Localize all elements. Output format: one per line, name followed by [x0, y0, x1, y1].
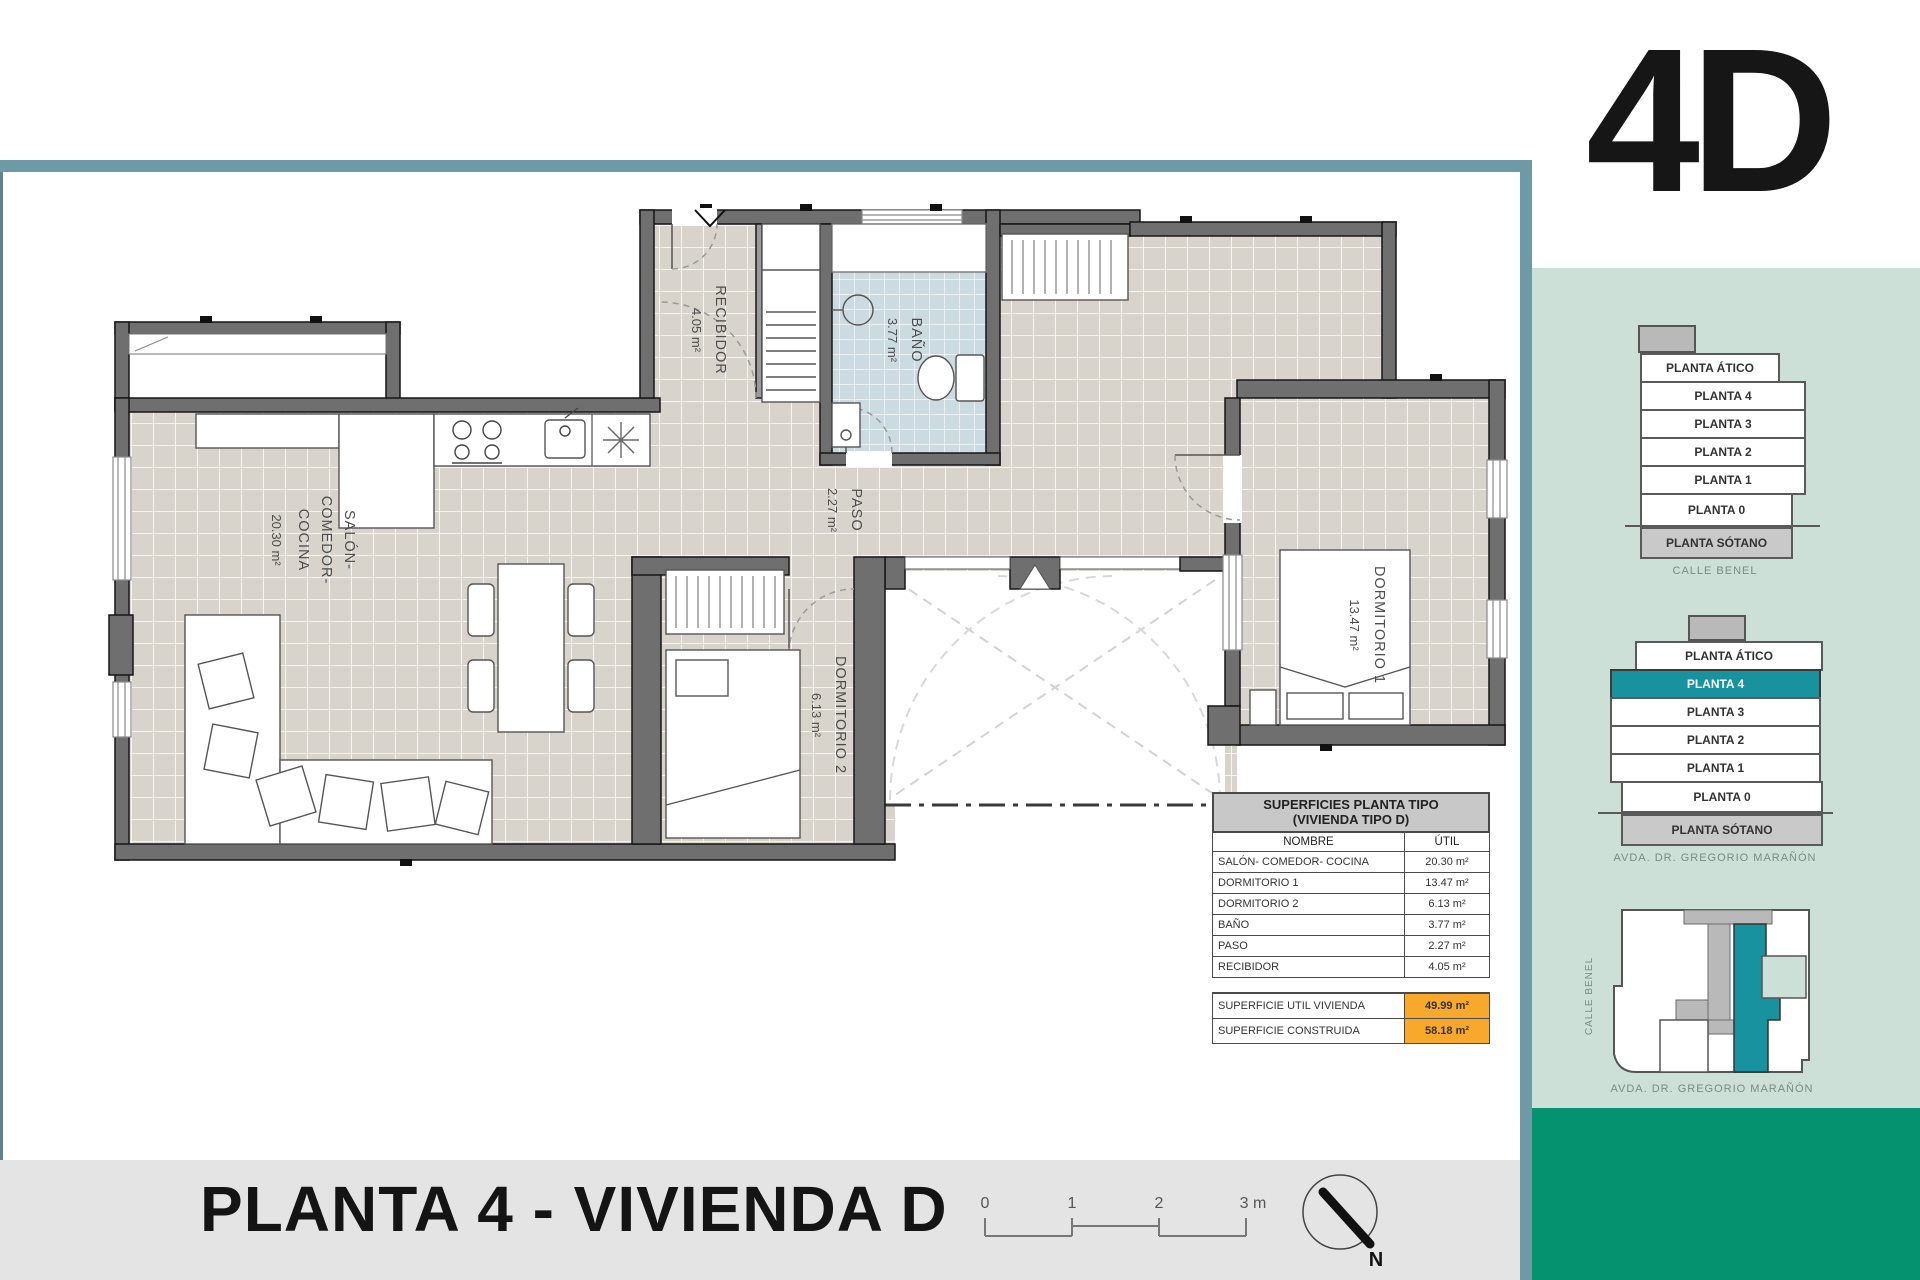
scale-tick-0: 0	[981, 1195, 990, 1212]
table-row: BAÑO3.77 m²	[1212, 915, 1490, 936]
svg-text:BAÑO: BAÑO	[908, 317, 925, 362]
stack-floor-1[interactable]: PLANTA 1	[1640, 465, 1806, 495]
floor-stack-bottom: PLANTA ÁTICO PLANTA 4 PLANTA 3 PLANTA 2 …	[1610, 615, 1850, 885]
svg-text:4.05 m²: 4.05 m²	[689, 308, 704, 353]
hall-closet	[762, 224, 820, 402]
table-totals: SUPERFICIE UTIL VIVIENDA 49.99 m² SUPERF…	[1212, 992, 1490, 1044]
table-row: RECIBIDOR4.05 m²	[1212, 957, 1490, 978]
stack-roof	[1638, 325, 1696, 353]
svg-text:2.27 m²: 2.27 m²	[825, 488, 840, 533]
stack-floor-4-active[interactable]: PLANTA 4	[1610, 669, 1821, 699]
street-label: AVDA. DR. GREGORIO MARAÑÓN	[1600, 852, 1830, 864]
table-row: DORMITORIO 113.47 m²	[1212, 873, 1490, 894]
svg-text:COMEDOR-: COMEDOR-	[318, 496, 334, 585]
stack-floor-1[interactable]: PLANTA 1	[1610, 753, 1821, 783]
scale-tick-3: 3 m	[1240, 1195, 1267, 1212]
north-arrow: N	[1290, 1160, 1400, 1280]
stack-floor-sotano[interactable]: PLANTA SÓTANO	[1621, 814, 1823, 846]
svg-text:20.30 m²: 20.30 m²	[269, 514, 284, 566]
sidebar-footer-block	[1532, 1108, 1920, 1280]
svg-text:COCINA: COCINA	[295, 509, 311, 571]
stack-floor-2[interactable]: PLANTA 2	[1640, 437, 1806, 467]
svg-text:13.47 m²: 13.47 m²	[1347, 599, 1362, 651]
stack-floor-0[interactable]: PLANTA 0	[1621, 781, 1823, 813]
street-left-label: CALLE BENEL	[1584, 957, 1595, 1035]
svg-text:PASO: PASO	[848, 488, 864, 531]
wardrobe-top	[1002, 234, 1128, 300]
stack-floor-atico[interactable]: PLANTA ÁTICO	[1635, 641, 1823, 671]
stack-floor-4[interactable]: PLANTA 4	[1640, 381, 1806, 411]
stack-floor-3[interactable]: PLANTA 3	[1610, 697, 1821, 727]
stack-floor-3[interactable]: PLANTA 3	[1640, 409, 1806, 439]
floor-stack-top: PLANTA ÁTICO PLANTA 4 PLANTA 3 PLANTA 2 …	[1640, 325, 1840, 585]
stack-roof	[1688, 615, 1746, 641]
table-header-row: NOMBRE ÚTIL	[1212, 833, 1490, 852]
courtyard	[1762, 956, 1806, 998]
svg-text:DORMITORIO 2: DORMITORIO 2	[832, 656, 848, 774]
dorm2-wardrobe	[666, 570, 784, 634]
stack-floor-0[interactable]: PLANTA 0	[1640, 493, 1793, 527]
street-bottom-label: AVDA. DR. GREGORIO MARAÑÓN	[1610, 1082, 1813, 1095]
table-row: PASO2.27 m²	[1212, 936, 1490, 957]
floorplan-sheet: { "meta": { "unit_code": "4D", "sheet_ti…	[0, 0, 1920, 1280]
svg-text:RECIBIDOR: RECIBIDOR	[712, 285, 728, 375]
site-plan: CALLE BENEL AVDA. DR. GREGORIO MARAÑÓN	[1556, 900, 1920, 1100]
svg-text:SALÓN-: SALÓN-	[341, 510, 358, 570]
stack-floor-2[interactable]: PLANTA 2	[1610, 725, 1821, 755]
dorm2-bed	[666, 650, 800, 838]
table-row: DORMITORIO 26.13 m²	[1212, 894, 1490, 915]
building-wing	[1660, 1020, 1708, 1072]
north-label: N	[1369, 1249, 1383, 1271]
total-util-value: 49.99 m²	[1405, 994, 1489, 1018]
surfaces-table-title: SUPERFICIES PLANTA TIPO (VIVIENDA TIPO D…	[1212, 792, 1490, 833]
svg-text:DORMITORIO 1: DORMITORIO 1	[1371, 566, 1387, 684]
street-label: CALLE BENEL	[1635, 565, 1795, 577]
table-row: SALÓN- COMEDOR- COCINA20.30 m²	[1212, 852, 1490, 873]
bath-sink-icon	[832, 403, 860, 447]
surfaces-table: SUPERFICIES PLANTA TIPO (VIVIENDA TIPO D…	[1212, 792, 1490, 1044]
stack-floor-atico[interactable]: PLANTA ÁTICO	[1640, 353, 1780, 383]
svg-text:6.13 m²: 6.13 m²	[809, 693, 824, 738]
scale-tick-2: 2	[1155, 1195, 1164, 1212]
total-construida-row: SUPERFICIE CONSTRUIDA 58.18 m²	[1212, 1019, 1490, 1044]
scale-tick-1: 1	[1068, 1195, 1077, 1212]
sheet-title: PLANTA 4 - VIVIENDA D	[200, 1172, 948, 1246]
stack-floor-sotano[interactable]: PLANTA SÓTANO	[1640, 527, 1793, 559]
patio	[885, 571, 1237, 805]
north-needle	[1323, 1192, 1370, 1244]
unit-code: 4D	[1532, 18, 1882, 223]
svg-text:3.77 m²: 3.77 m²	[885, 318, 900, 363]
total-construida-value: 58.18 m²	[1405, 1019, 1489, 1043]
total-util-row: SUPERFICIE UTIL VIVIENDA 49.99 m²	[1212, 993, 1490, 1019]
scale-bar: 0 1 2 3 m	[960, 1190, 1290, 1270]
